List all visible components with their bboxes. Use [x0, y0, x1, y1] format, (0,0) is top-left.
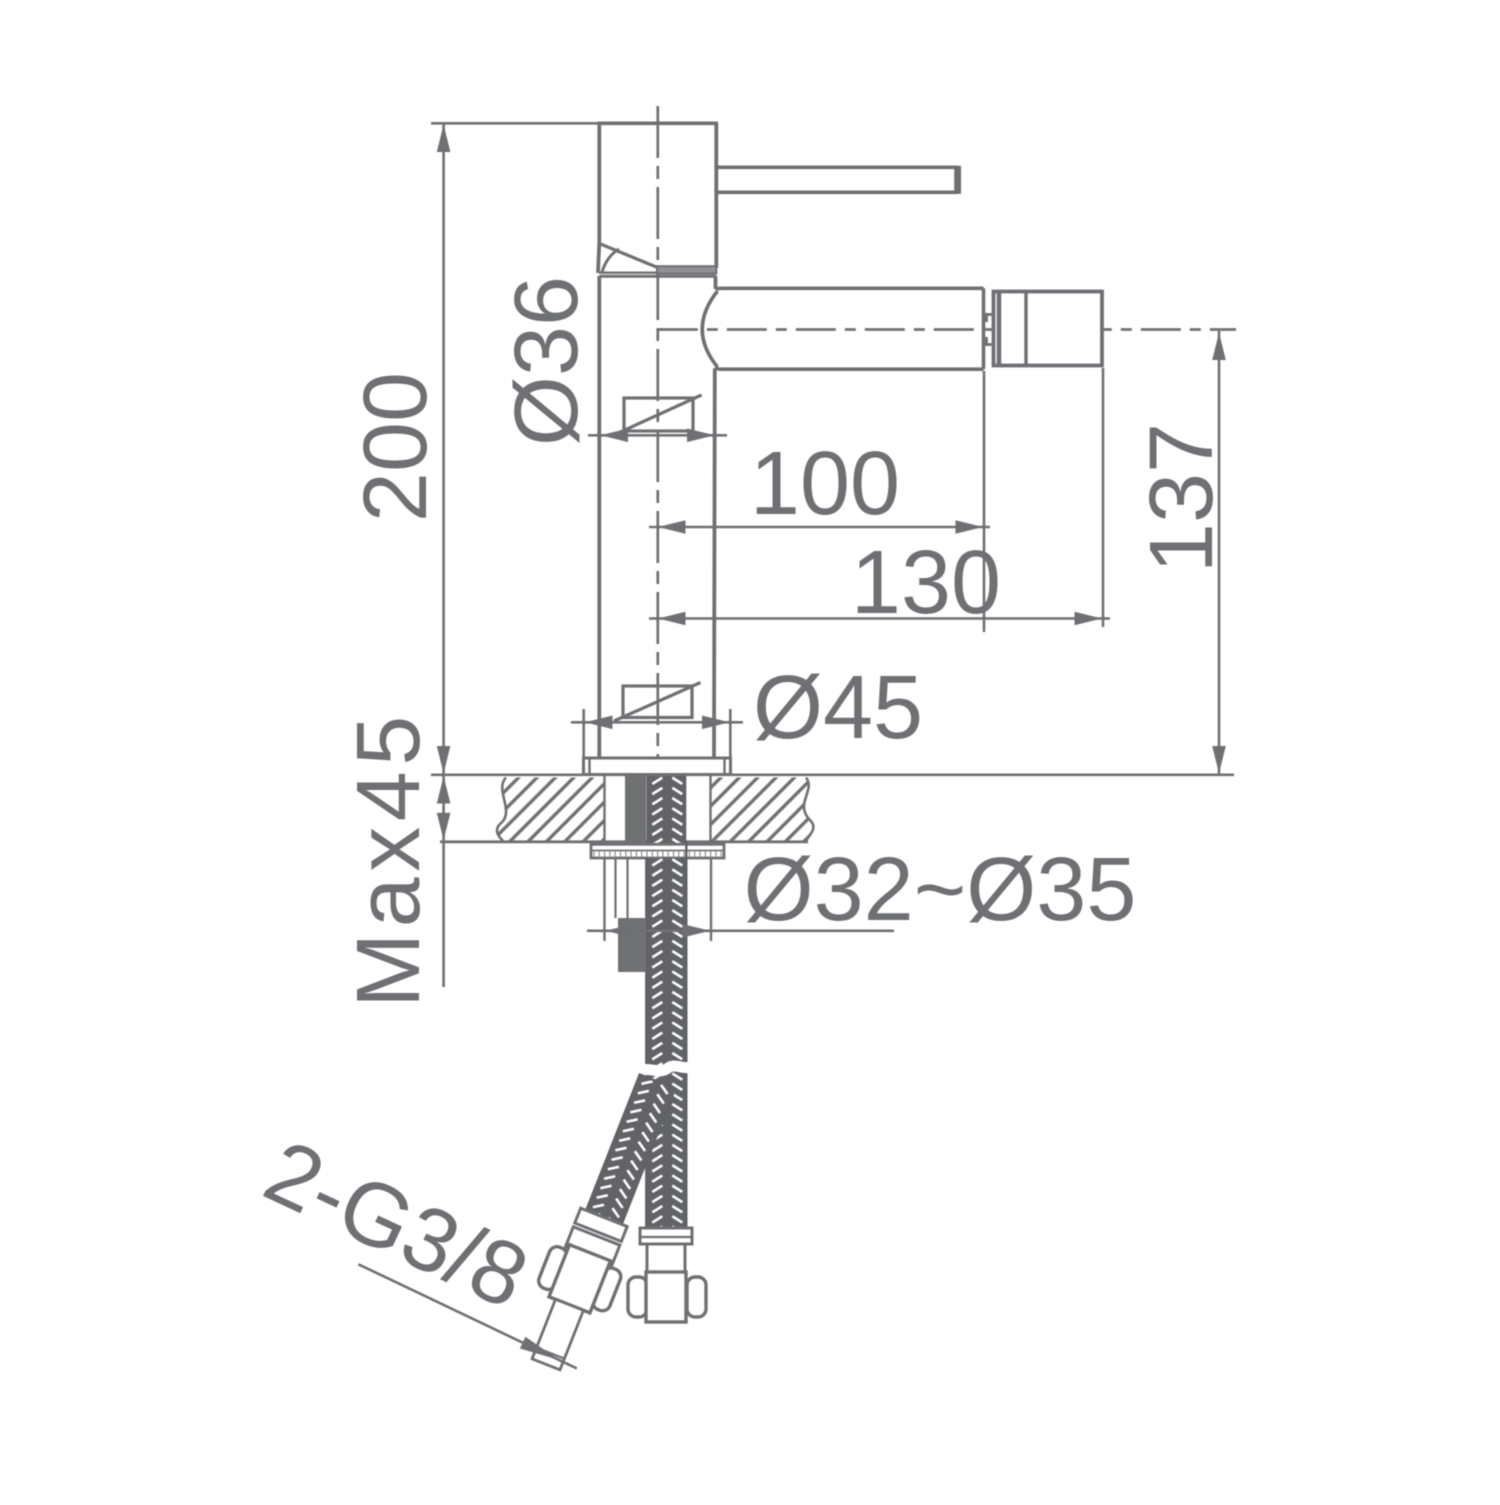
svg-text:100: 100	[750, 434, 900, 534]
svg-text:Ø36: Ø36	[497, 276, 597, 446]
svg-text:200: 200	[346, 372, 446, 522]
svg-text:Ø32~Ø35: Ø32~Ø35	[744, 840, 1137, 940]
svg-text:130: 130	[851, 533, 1001, 633]
svg-text:Max45: Max45	[339, 710, 439, 1008]
svg-text:137: 137	[1132, 423, 1232, 573]
svg-text:2-G3/8: 2-G3/8	[251, 1121, 543, 1328]
svg-text:Ø45: Ø45	[753, 658, 923, 758]
